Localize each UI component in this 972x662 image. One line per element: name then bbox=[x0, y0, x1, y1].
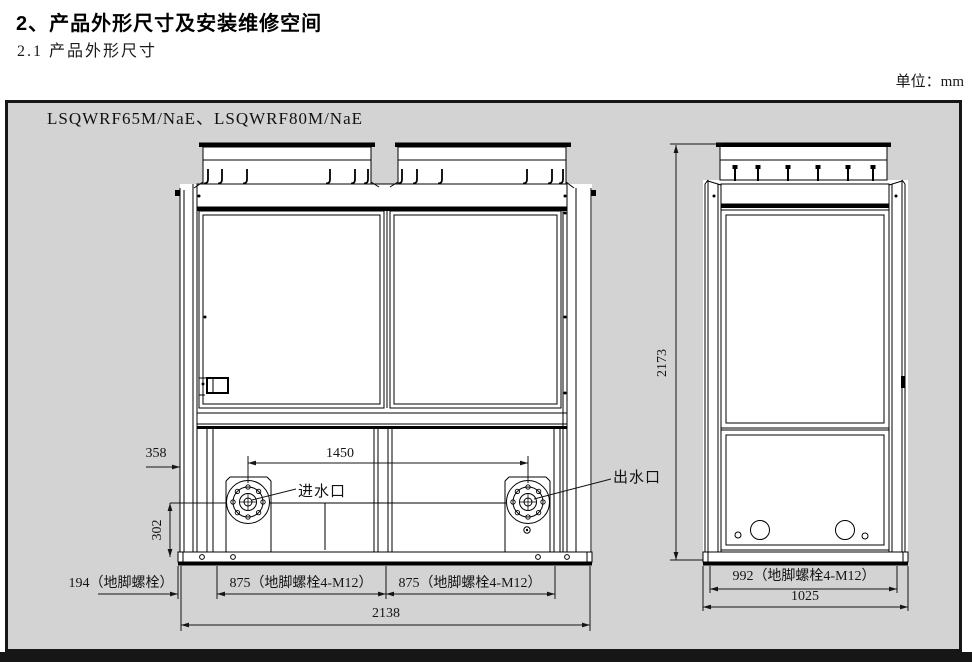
water-outlet-label: 出水口 bbox=[613, 466, 661, 487]
dim-port-height: 302 bbox=[150, 515, 166, 545]
dim-anchor-span-left: 875（地脚螺栓4-M12） bbox=[219, 576, 383, 592]
dim-anchor-span-side: 992（地脚螺栓4-M12） bbox=[722, 569, 886, 585]
manual-page: { "page": { "title": "2、产品外形尺寸及安装维修空间", … bbox=[0, 0, 972, 662]
dim-overall-width: 2138 bbox=[356, 606, 416, 622]
dim-anchor-left: 194（地脚螺栓） bbox=[54, 576, 188, 592]
dim-inlet-outlet-spacing: 1450 bbox=[316, 446, 364, 462]
water-inlet-label: 进水口 bbox=[298, 480, 346, 501]
model-label: LSQWRF65M/NaE、LSQWRF80M/NaE bbox=[47, 104, 363, 129]
unit-note: 单位：mm bbox=[896, 70, 964, 91]
dim-anchor-span-right: 875（地脚螺栓4-M12） bbox=[388, 576, 552, 592]
dim-overall-height: 2173 bbox=[655, 341, 671, 385]
dim-overall-depth: 1025 bbox=[775, 589, 835, 605]
dim-port-side-offset: 358 bbox=[138, 446, 174, 462]
page-title: 2、产品外形尺寸及安装维修空间 bbox=[16, 7, 322, 36]
section-divider-band bbox=[0, 652, 972, 662]
page-subtitle: 2.1 产品外形尺寸 bbox=[17, 37, 157, 61]
